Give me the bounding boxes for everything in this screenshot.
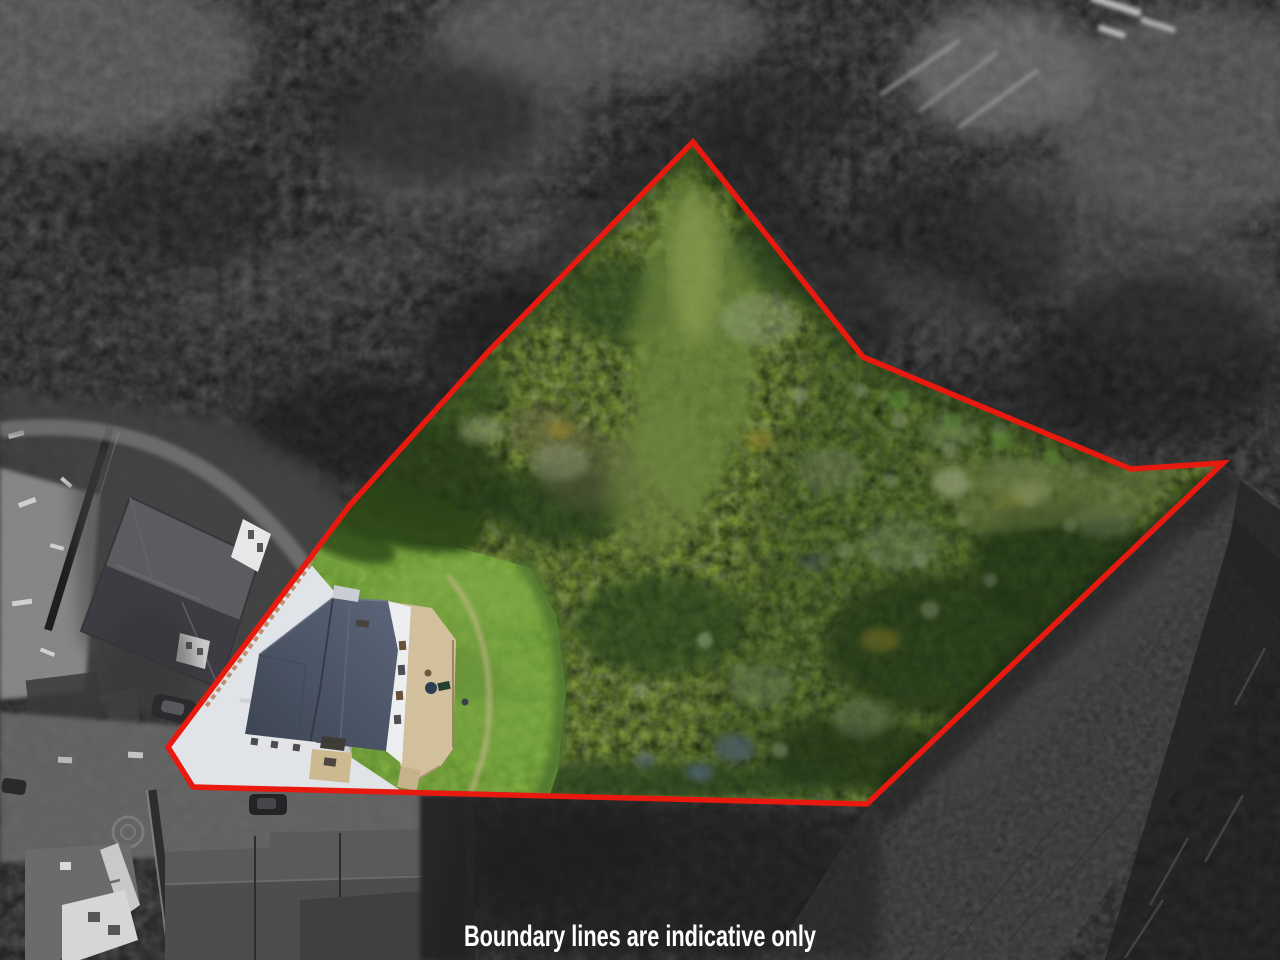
svg-text:Boundary lines are indicative: Boundary lines are indicative only bbox=[464, 920, 816, 953]
